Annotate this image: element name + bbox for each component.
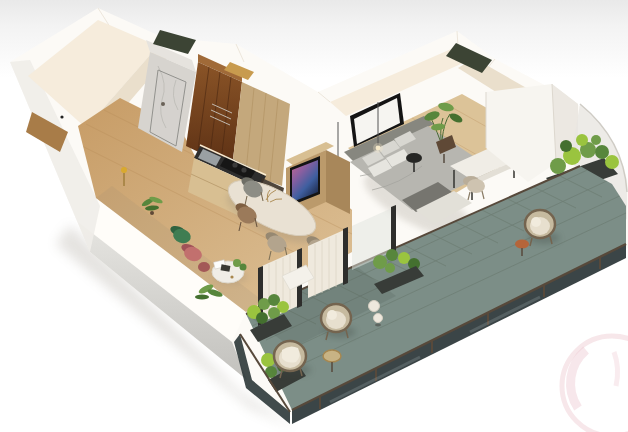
table-plant — [240, 264, 247, 271]
table-deco — [230, 275, 233, 278]
burner — [241, 167, 246, 172]
apartment-render — [0, 0, 628, 432]
entry-door-handle — [60, 115, 63, 118]
watermark — [562, 336, 628, 432]
render-canvas — [0, 0, 628, 432]
watermark-mark — [614, 352, 618, 386]
door-frame-post — [391, 205, 396, 255]
towel-drape — [282, 346, 300, 362]
burner — [232, 162, 237, 167]
door-frame-post — [343, 227, 348, 285]
terracotta-side-table — [515, 240, 529, 249]
desk-chair — [467, 179, 485, 193]
watermark-arc — [571, 350, 586, 408]
shower-door-handle — [161, 102, 165, 106]
